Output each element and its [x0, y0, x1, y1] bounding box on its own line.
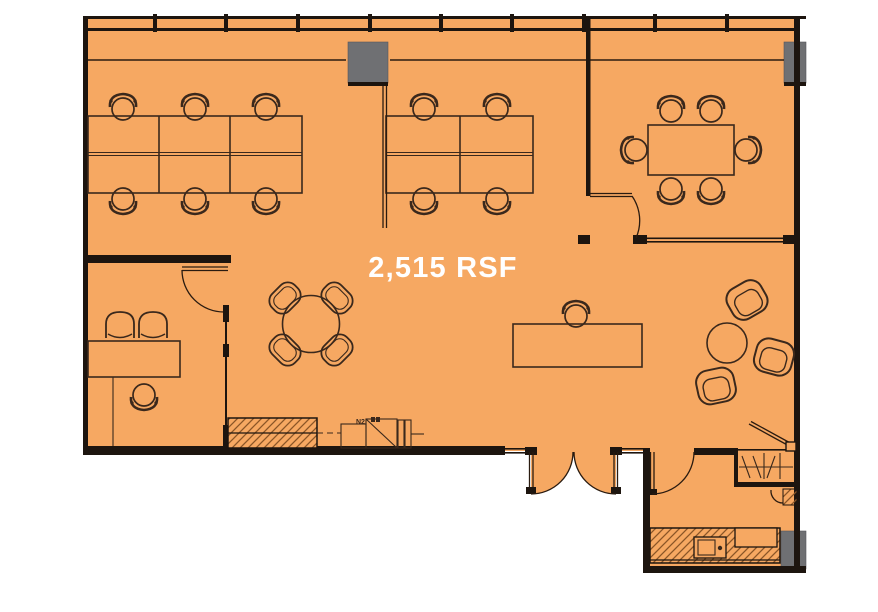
- top-wall-inner: [87, 28, 800, 31]
- floor-plan-drawing: N2: [0, 0, 878, 612]
- entry-door-left-hinge: [526, 487, 536, 494]
- conference-wall-end: [783, 235, 796, 244]
- entry-jamb-left: [525, 447, 537, 455]
- area-label: 2,515 RSF: [368, 252, 517, 284]
- office-top-wall: [86, 255, 231, 263]
- column-top-middle-edge: [348, 82, 388, 86]
- credenza-millwork: [228, 418, 317, 448]
- pantry-appliance: [735, 528, 777, 547]
- left-wall: [83, 16, 88, 455]
- entry-door-swing-left-fill: [531, 452, 573, 494]
- top-wall-outer: [83, 16, 806, 19]
- column-bottom-right: [781, 531, 806, 569]
- pantry-counter: [650, 528, 780, 563]
- lower-room-top-wall: [694, 448, 738, 455]
- conference-left-wall: [586, 19, 591, 196]
- vestibule-wall: [643, 448, 650, 573]
- bottom-wall-right: [643, 566, 806, 573]
- sink-faucet: [718, 546, 722, 550]
- closet-door-end: [786, 442, 796, 451]
- conference-door-jamb-right: [633, 235, 647, 244]
- equipment-label: N2: [356, 419, 365, 426]
- column-top-middle: [348, 42, 388, 83]
- entry-jamb-right: [610, 447, 622, 455]
- conference-door-jamb-left: [578, 235, 590, 244]
- floor-plan-canvas: N2: [0, 0, 878, 612]
- entry-door-swing-right-fill: [574, 452, 616, 494]
- entry-door-right-hinge: [611, 487, 621, 494]
- main-floor: [87, 19, 795, 451]
- floor-area: [87, 19, 795, 568]
